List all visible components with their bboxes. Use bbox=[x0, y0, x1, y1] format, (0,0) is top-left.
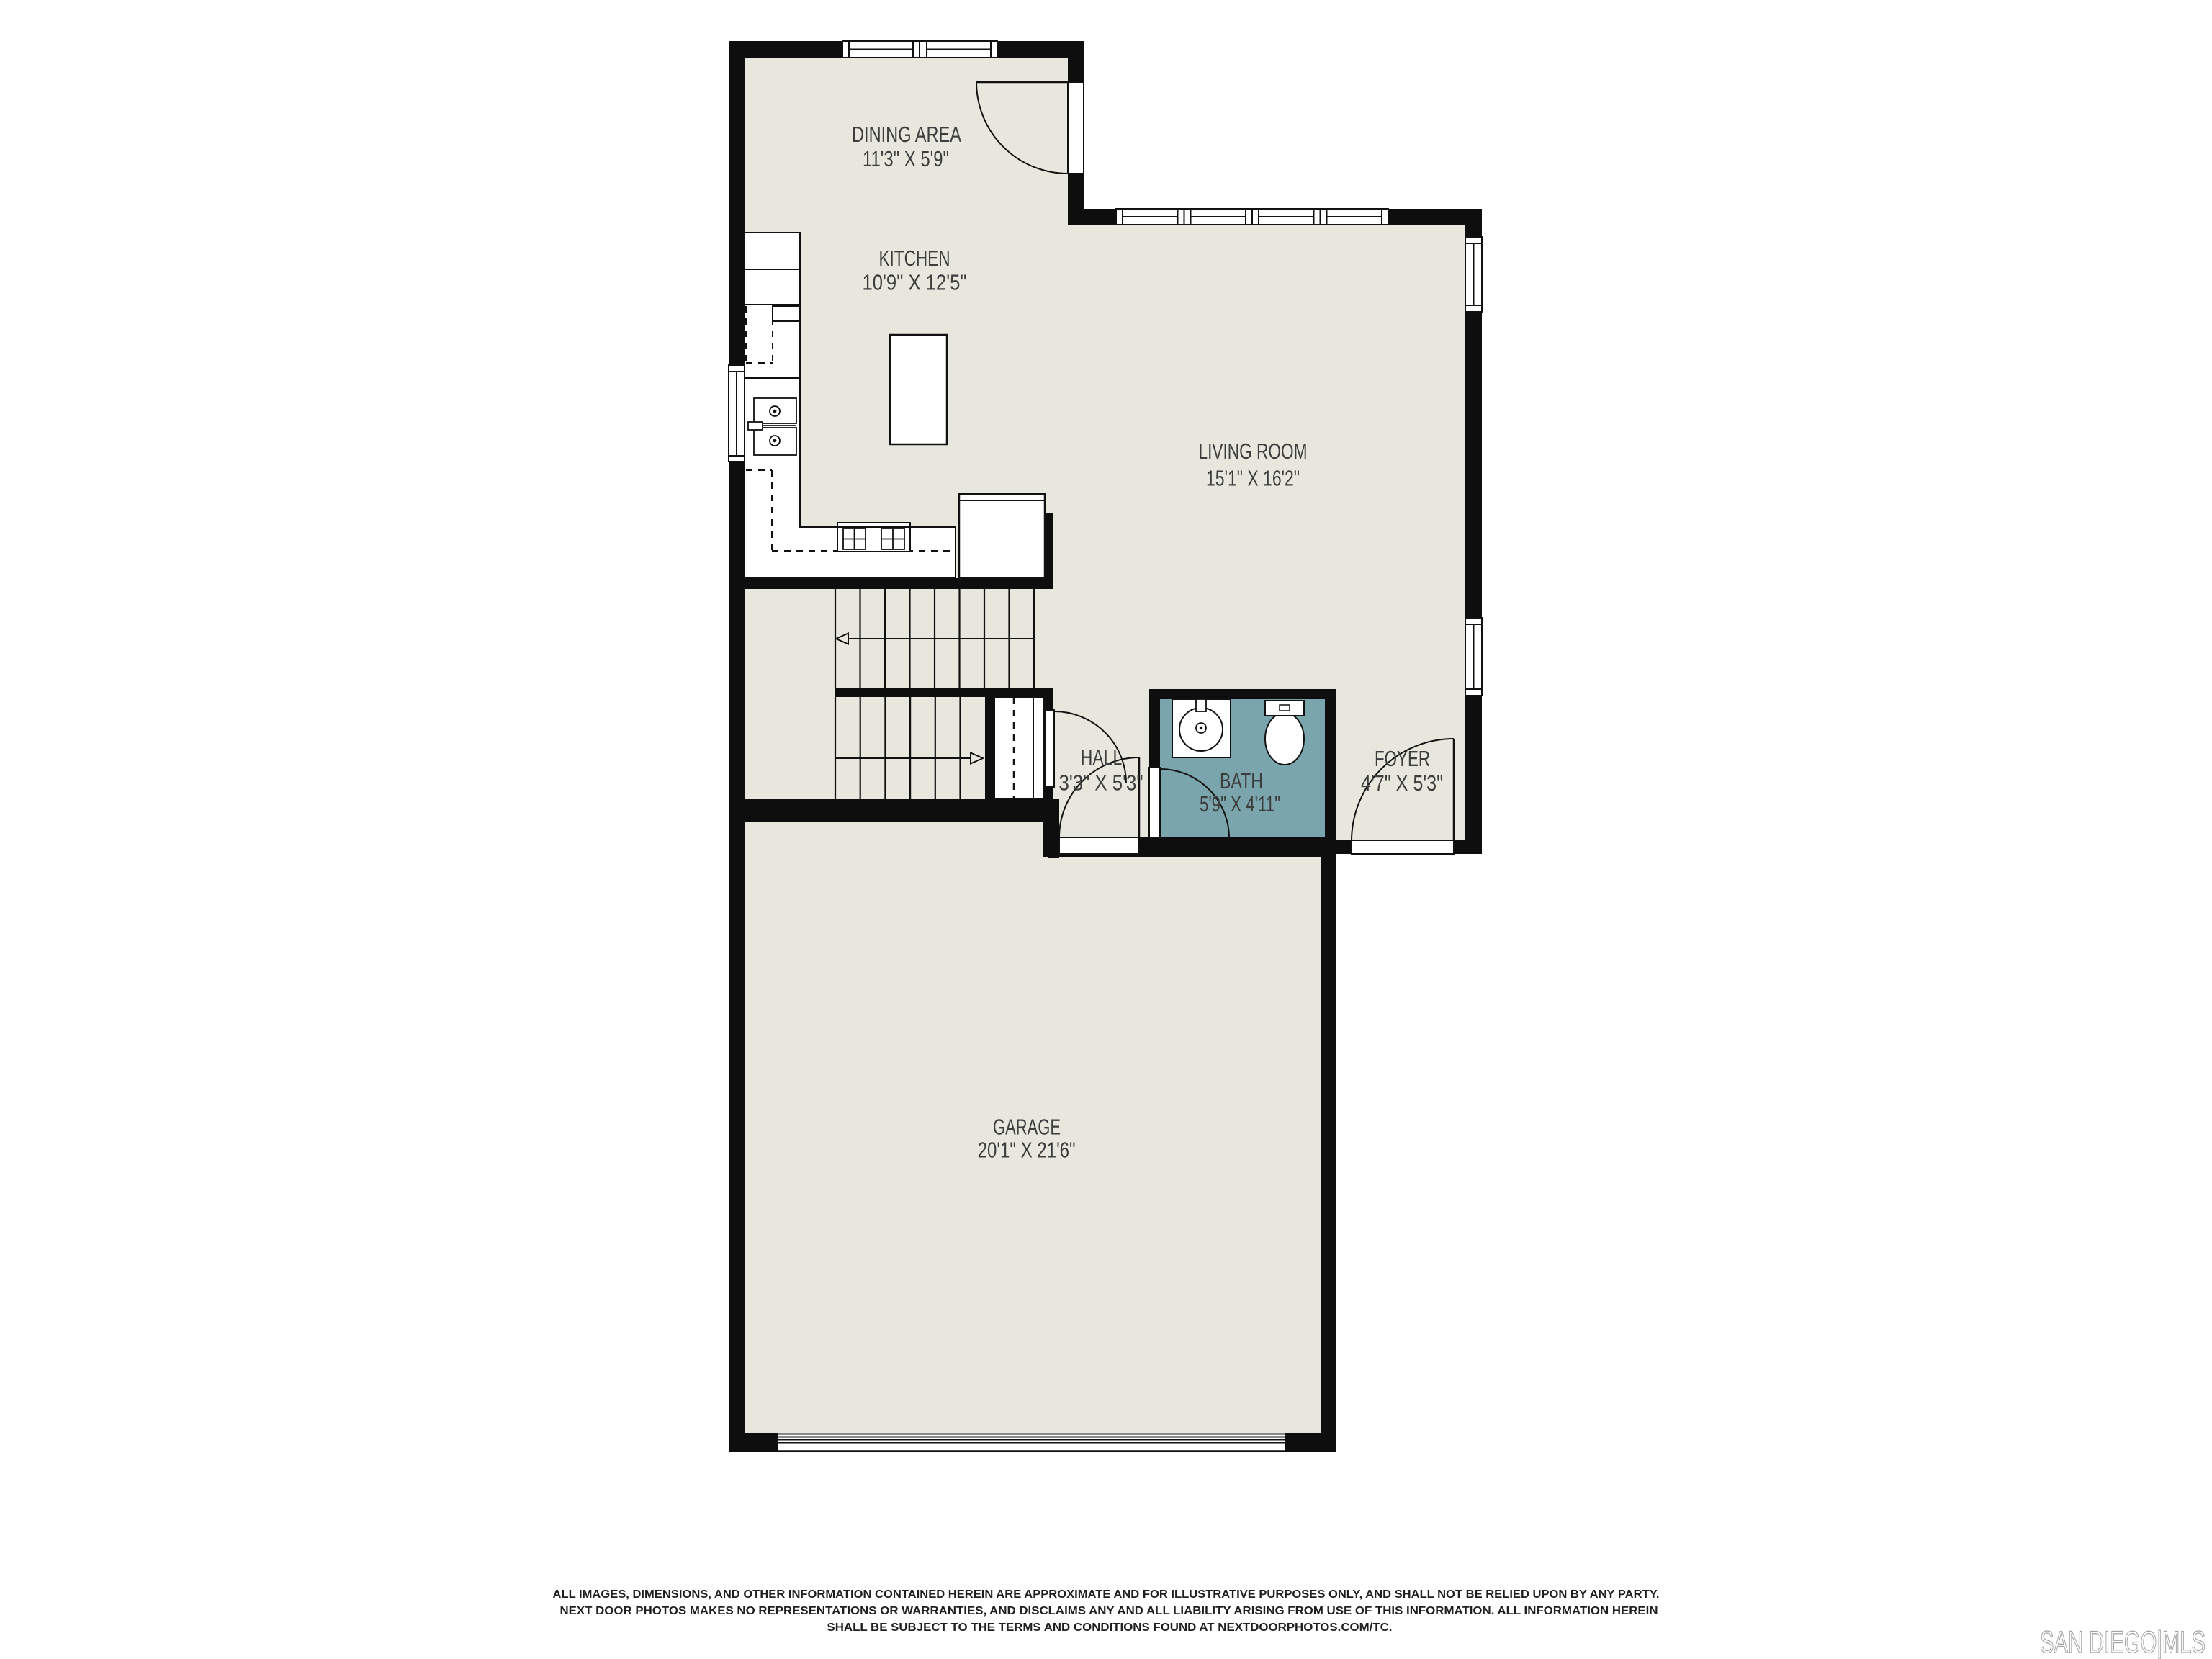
svg-text:NEXT DOOR PHOTOS MAKES NO REPR: NEXT DOOR PHOTOS MAKES NO REPRESENTATION… bbox=[560, 1605, 1658, 1617]
svg-text:DINING AREA: DINING AREA bbox=[852, 122, 961, 147]
svg-text:HALL: HALL bbox=[1081, 745, 1123, 770]
svg-text:KITCHEN: KITCHEN bbox=[879, 246, 950, 271]
svg-text:SAN DIEGO|MLS: SAN DIEGO|MLS bbox=[2040, 1625, 2206, 1659]
svg-text:11'3" X 5'9": 11'3" X 5'9" bbox=[863, 146, 949, 171]
svg-text:BATH: BATH bbox=[1220, 768, 1263, 793]
svg-text:4'7" X 5'3": 4'7" X 5'3" bbox=[1361, 770, 1443, 796]
svg-text:3'3" X 5'3": 3'3" X 5'3" bbox=[1059, 770, 1143, 796]
svg-text:15'1" X 16'2": 15'1" X 16'2" bbox=[1206, 466, 1300, 491]
svg-text:20'1" X 21'6": 20'1" X 21'6" bbox=[978, 1138, 1076, 1163]
svg-text:5'9" X 4'11": 5'9" X 4'11" bbox=[1200, 791, 1280, 817]
svg-text:LIVING ROOM: LIVING ROOM bbox=[1199, 439, 1308, 464]
svg-text:10'9" X 12'5": 10'9" X 12'5" bbox=[863, 270, 967, 295]
svg-text:GARAGE: GARAGE bbox=[993, 1115, 1061, 1140]
svg-text:ALL IMAGES, DIMENSIONS, AND OT: ALL IMAGES, DIMENSIONS, AND OTHER INFORM… bbox=[553, 1588, 1660, 1601]
svg-text:SHALL BE SUBJECT TO THE TERMS: SHALL BE SUBJECT TO THE TERMS AND CONDIT… bbox=[827, 1622, 1393, 1634]
svg-text:FOYER: FOYER bbox=[1375, 746, 1430, 771]
